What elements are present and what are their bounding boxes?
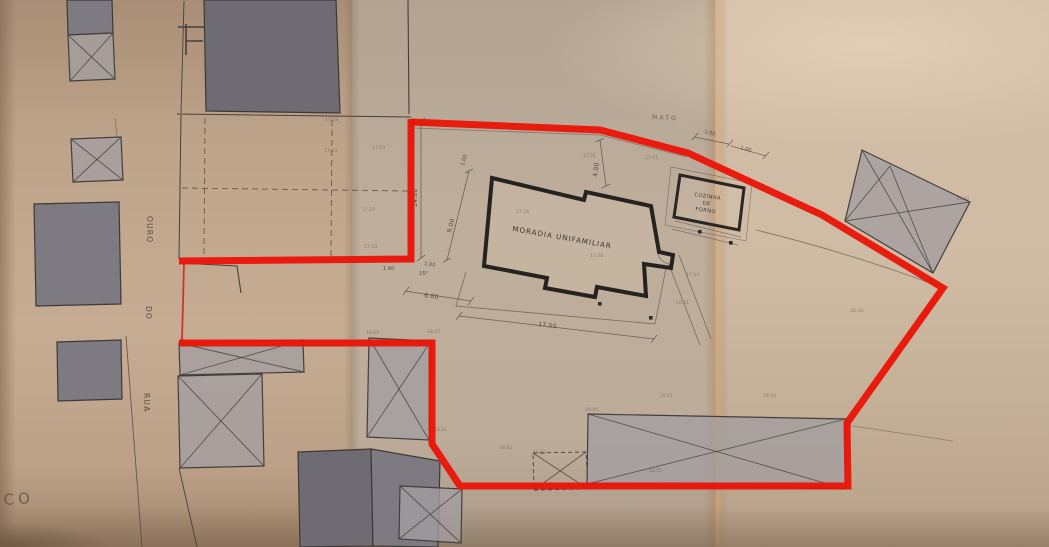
level-annotation: 19.10: [763, 393, 776, 399]
level-annotation: 17.26: [516, 209, 529, 215]
annex-label-line2: DE: [702, 200, 711, 207]
neighbor-building-1: [67, 0, 113, 35]
neighbor-building-6: [57, 340, 122, 401]
street-name-do: DO: [144, 306, 153, 320]
existing-building-11-hatched: [399, 486, 462, 543]
level-annotation: 17.10: [372, 145, 385, 151]
level-annotation: 17.21: [583, 153, 596, 159]
neighbor-building-2-hatched: [68, 33, 115, 81]
bottom-shadow: [0, 505, 1049, 547]
existing-building-9-hatched: [367, 338, 431, 440]
scanned-site-plan: MORADIA UNIFAMILIAR COZINHA DE FORNO 14.…: [0, 0, 1049, 547]
level-annotation: 17.43: [364, 244, 377, 250]
street-name-rua: RUA: [142, 393, 151, 412]
level-annotation: 19.02: [533, 450, 546, 456]
level-annotation: 18.61: [434, 427, 447, 433]
dim-angle: 15°: [419, 271, 428, 277]
left-edge-shadow: [0, 0, 16, 547]
street-name-ouro: OURO: [145, 216, 154, 243]
existing-building-12-hatched: [587, 414, 846, 489]
level-annotation: 17.03: [324, 148, 337, 154]
site-plan-canvas: MORADIA UNIFAMILIAR COZINHA DE FORNO 14.…: [0, 0, 1049, 547]
neighbor-building-5: [204, 0, 340, 113]
level-annotation: 18.01: [676, 300, 689, 306]
level-annotation: 17.61: [645, 155, 658, 161]
level-annotation: 18.55: [649, 468, 662, 474]
level-annotation: 18.47: [427, 329, 440, 335]
level-annotation: 18.82: [499, 445, 512, 451]
level-annotation: 17.27: [362, 207, 375, 213]
level-annotation: 17.54: [686, 272, 699, 278]
level-annotation: 17.36: [590, 253, 603, 259]
level-annotation: 15.80: [956, 196, 969, 202]
level-annotation: 18.43: [850, 308, 863, 314]
neighbor-building-3-hatched: [71, 137, 123, 182]
neighbor-building-4: [34, 202, 121, 306]
edge-text-fragment: CO: [3, 489, 34, 509]
level-annotation: 18.60: [366, 330, 379, 336]
existing-building-8-hatched: [178, 374, 264, 468]
neighbor-building-10a: [298, 449, 373, 547]
level-annotation: 17.18: [325, 117, 338, 123]
dim-front-offset: 1.60: [383, 266, 394, 272]
vegetation-label: MATO: [652, 114, 678, 122]
level-annotation: 19.11: [660, 393, 673, 399]
level-annotation: 19.05: [585, 407, 598, 413]
